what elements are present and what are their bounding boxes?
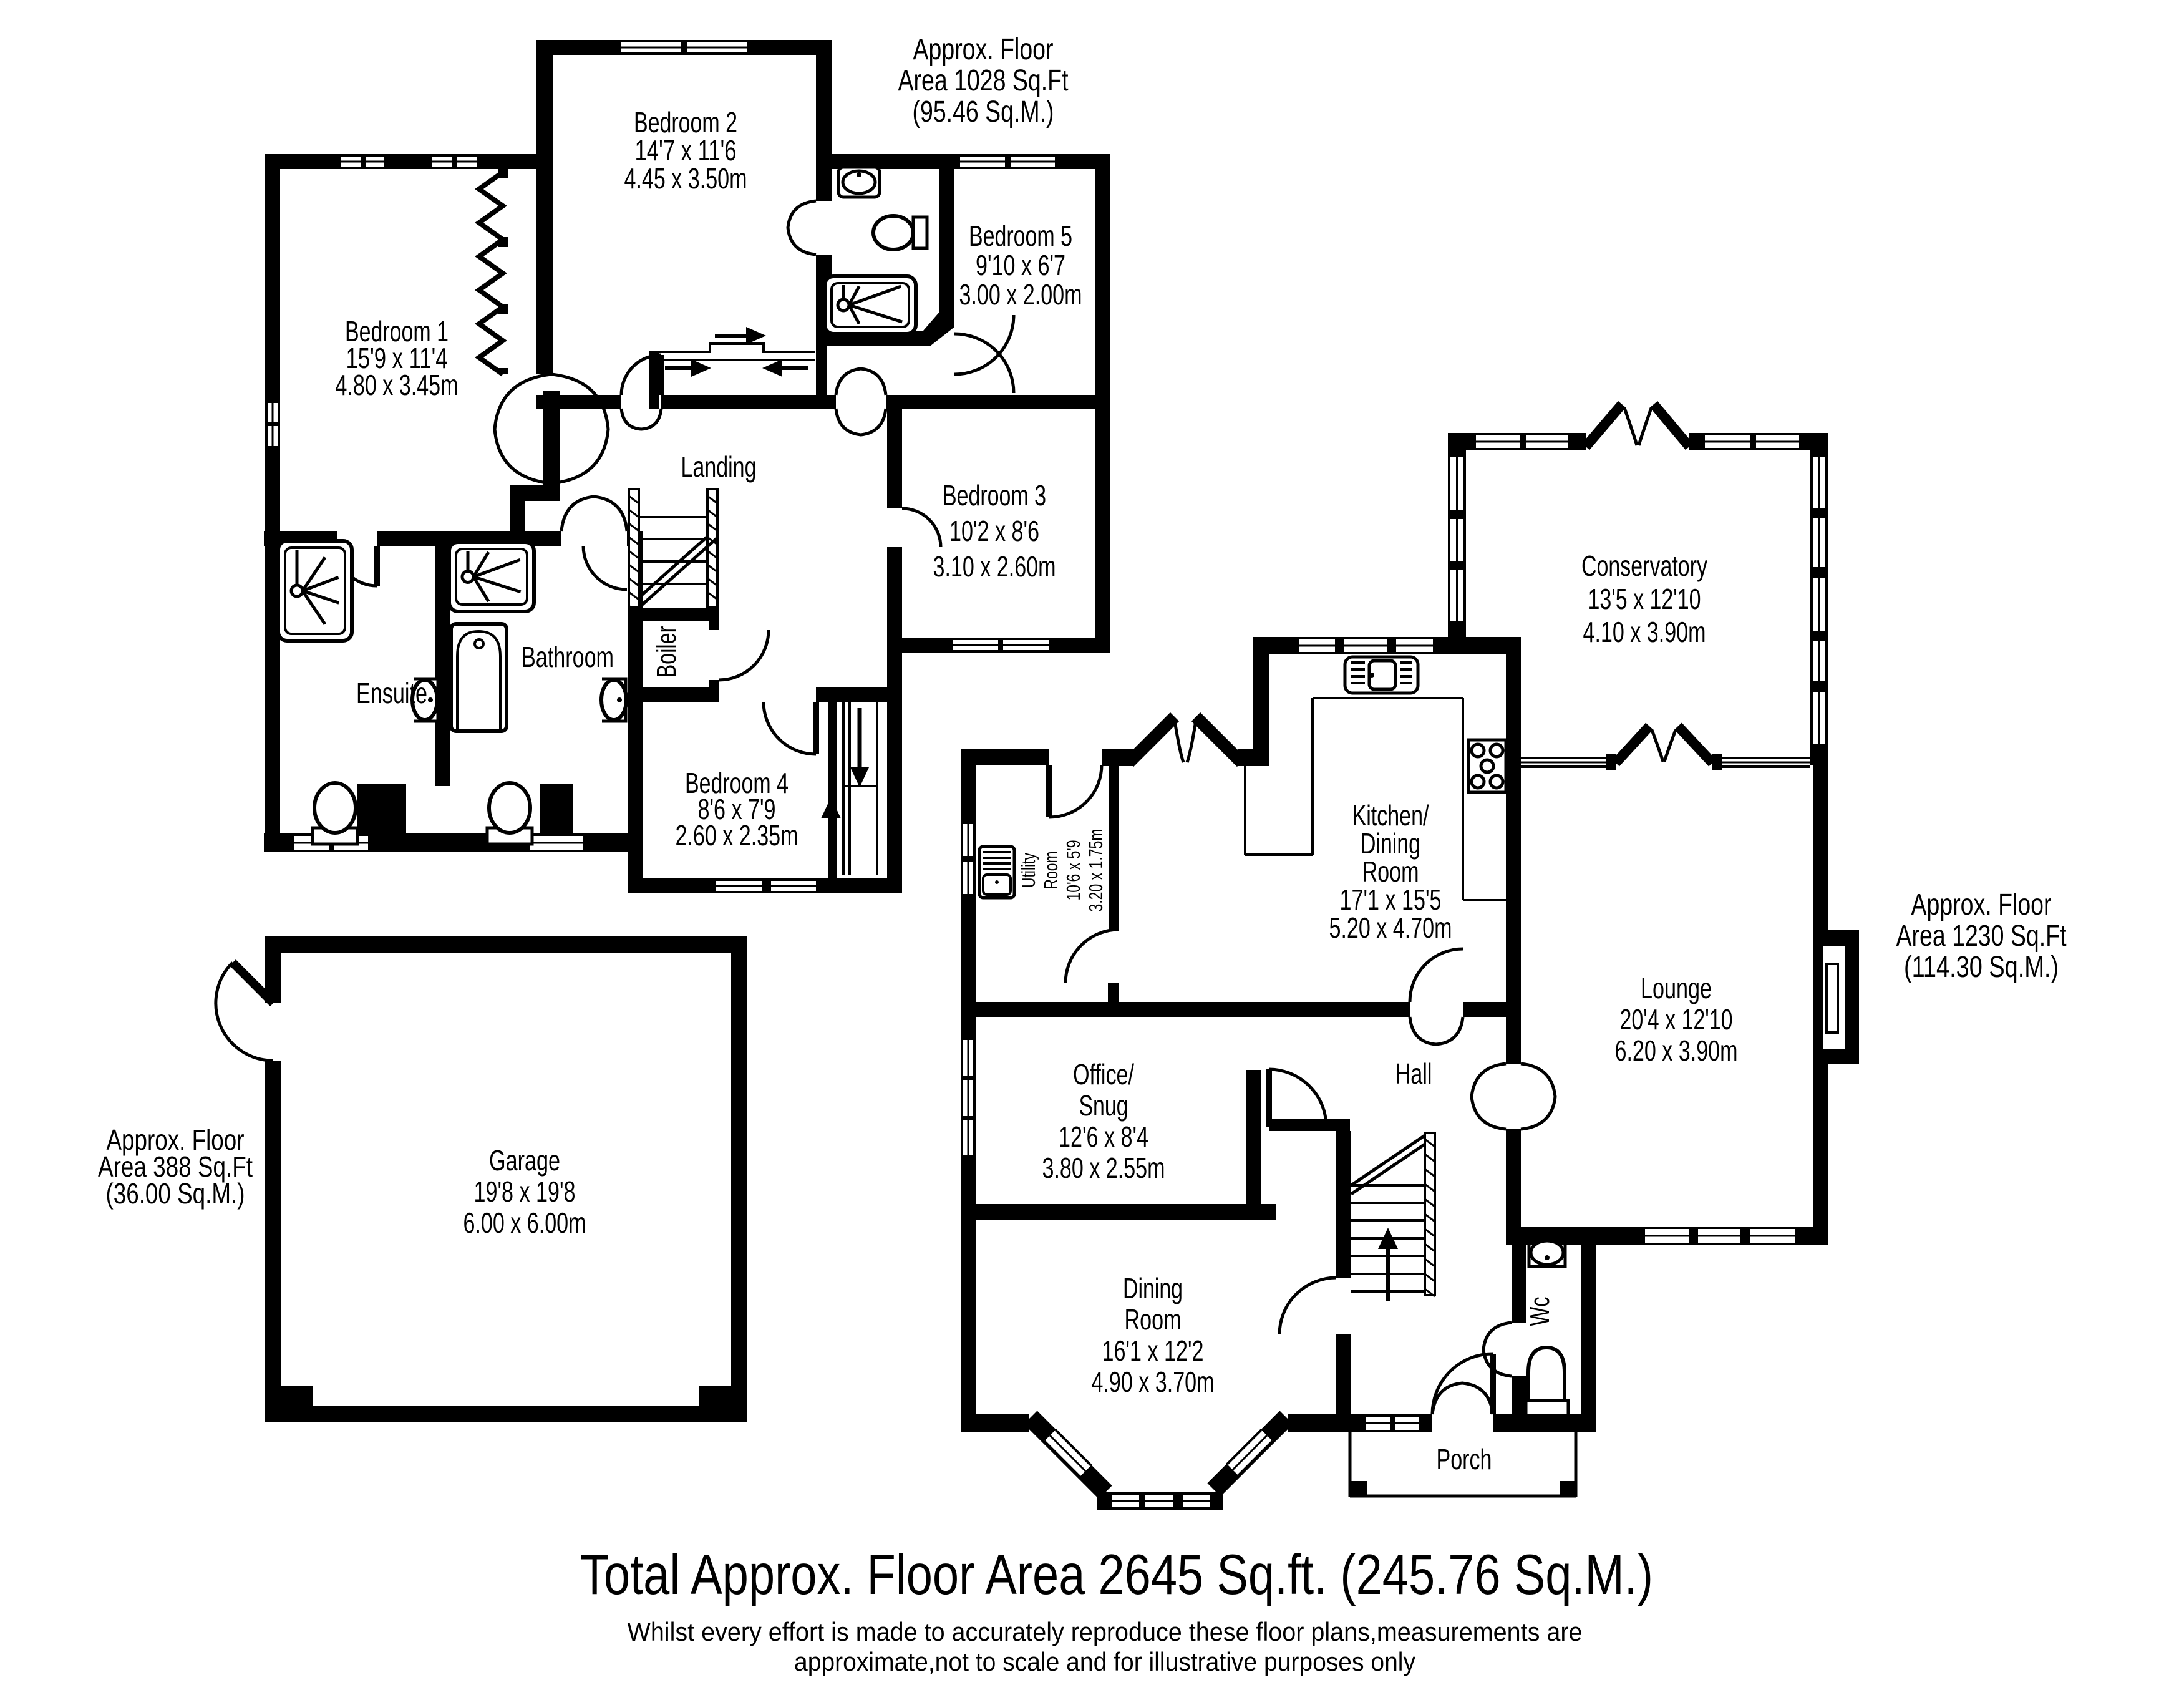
svg-text:4.45 x 3.50m: 4.45 x 3.50m <box>624 162 747 195</box>
svg-text:Snug: Snug <box>1079 1089 1128 1122</box>
svg-text:Garage: Garage <box>489 1144 560 1177</box>
svg-text:4.80 x 3.45m: 4.80 x 3.45m <box>336 369 459 401</box>
svg-text:12'6 x 8'4: 12'6 x 8'4 <box>1059 1120 1148 1153</box>
svg-text:approximate,not to scale and f: approximate,not to scale and for illustr… <box>794 1647 1415 1676</box>
svg-text:(114.30 Sq.M.): (114.30 Sq.M.) <box>1904 951 2059 984</box>
svg-text:Total Approx. Floor Area 2645: Total Approx. Floor Area 2645 Sq.ft. (24… <box>580 1543 1653 1606</box>
svg-text:Area 1230 Sq.Ft: Area 1230 Sq.Ft <box>1896 920 2067 953</box>
svg-text:3.80 x 2.55m: 3.80 x 2.55m <box>1042 1152 1165 1184</box>
svg-text:10'2 x 8'6: 10'2 x 8'6 <box>949 515 1039 547</box>
svg-text:19'8 x 19'8: 19'8 x 19'8 <box>474 1175 576 1208</box>
svg-text:Porch: Porch <box>1437 1443 1492 1475</box>
svg-text:Whilst every effort is made to: Whilst every effort is made to accuratel… <box>628 1617 1583 1646</box>
svg-text:3.10 x 2.60m: 3.10 x 2.60m <box>933 550 1056 583</box>
svg-text:Area 1028 Sq.Ft: Area 1028 Sq.Ft <box>898 64 1069 97</box>
svg-text:(36.00 Sq.M.): (36.00 Sq.M.) <box>106 1177 245 1210</box>
svg-text:3.20 x 1.75m: 3.20 x 1.75m <box>1085 829 1107 912</box>
svg-text:Room: Room <box>1040 852 1062 890</box>
svg-text:16'1 x 12'2: 16'1 x 12'2 <box>1102 1334 1204 1367</box>
svg-text:Bathroom: Bathroom <box>522 641 614 673</box>
svg-text:5.20 x 4.70m: 5.20 x 4.70m <box>1329 911 1452 944</box>
svg-text:Boiler: Boiler <box>651 626 682 678</box>
svg-text:6.20 x 3.90m: 6.20 x 3.90m <box>1615 1034 1738 1067</box>
svg-text:Landing: Landing <box>681 450 757 483</box>
svg-text:13'5 x 12'10: 13'5 x 12'10 <box>1588 583 1701 615</box>
svg-text:Approx. Floor: Approx. Floor <box>1911 888 2052 921</box>
svg-text:Approx. Floor: Approx. Floor <box>913 33 1054 66</box>
svg-text:10'6 x 5'9: 10'6 x 5'9 <box>1062 840 1084 901</box>
svg-text:3.00 x 2.00m: 3.00 x 2.00m <box>959 278 1082 311</box>
svg-text:Hall: Hall <box>1395 1057 1432 1090</box>
svg-text:Room: Room <box>1125 1303 1182 1336</box>
svg-text:2.60 x 2.35m: 2.60 x 2.35m <box>676 819 798 852</box>
svg-text:Bedroom 5: Bedroom 5 <box>969 220 1072 252</box>
svg-text:Wc: Wc <box>1525 1297 1555 1326</box>
svg-text:4.90 x 3.70m: 4.90 x 3.70m <box>1092 1366 1215 1398</box>
svg-text:(95.46 Sq.M.): (95.46 Sq.M.) <box>913 95 1054 129</box>
svg-text:Utility: Utility <box>1017 853 1039 888</box>
svg-text:Ensuite: Ensuite <box>356 677 427 709</box>
svg-text:4.10 x 3.90m: 4.10 x 3.90m <box>1583 616 1706 648</box>
svg-text:Office/: Office/ <box>1073 1058 1134 1091</box>
svg-text:9'10 x 6'7: 9'10 x 6'7 <box>976 249 1065 281</box>
svg-text:Bedroom 3: Bedroom 3 <box>943 479 1046 512</box>
svg-text:Lounge: Lounge <box>1641 972 1712 1004</box>
svg-text:Dining: Dining <box>1123 1272 1183 1304</box>
svg-text:20'4 x 12'10: 20'4 x 12'10 <box>1620 1003 1733 1036</box>
svg-text:Conservatory: Conservatory <box>1581 550 1707 582</box>
svg-text:6.00 x 6.00m: 6.00 x 6.00m <box>463 1207 586 1239</box>
